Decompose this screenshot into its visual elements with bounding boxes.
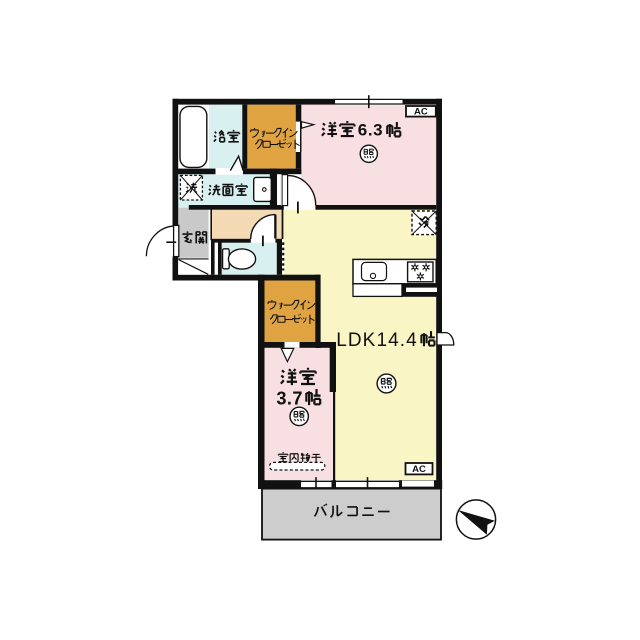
svg-text:LDK14.4: LDK14.4 [336, 330, 418, 351]
svg-text:AC: AC [414, 106, 428, 117]
svg-text:3.7: 3.7 [276, 388, 302, 408]
svg-text:6.3: 6.3 [358, 121, 383, 140]
svg-text:AC: AC [412, 464, 426, 475]
